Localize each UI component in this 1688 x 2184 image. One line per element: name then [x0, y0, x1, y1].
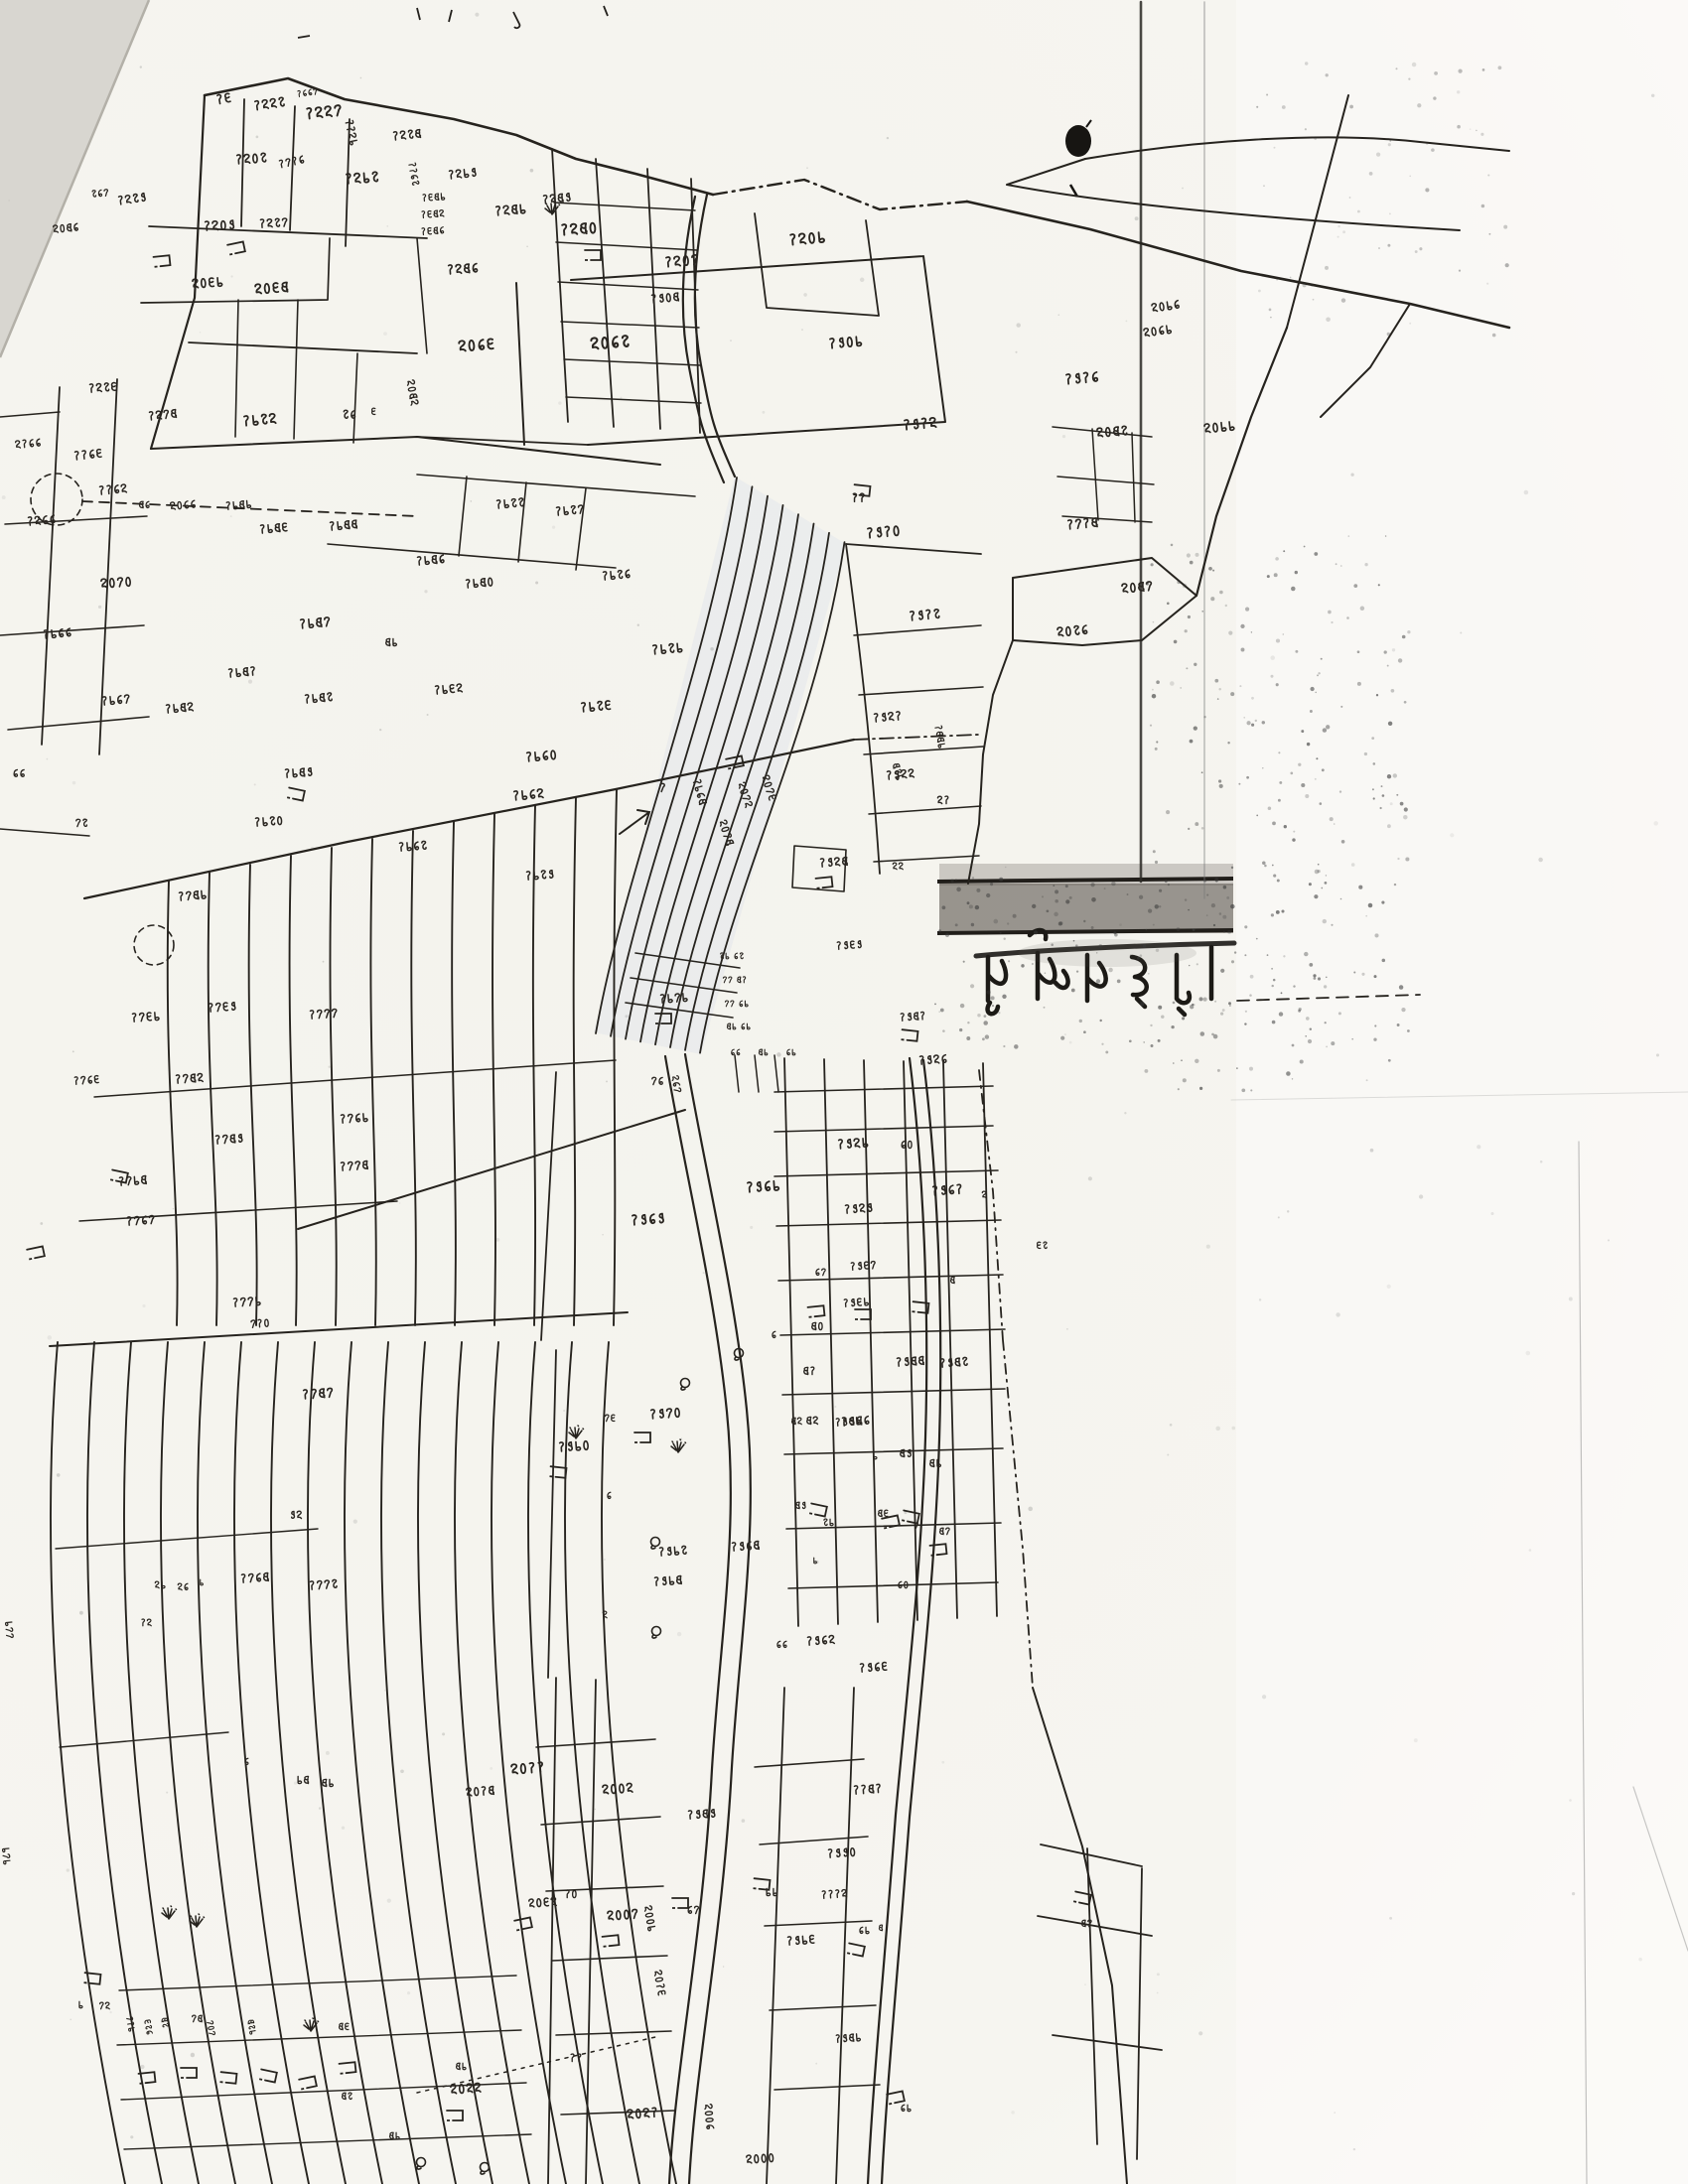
cadastral-map-canvas	[0, 0, 1688, 2184]
paper-right-lighter-area	[1236, 0, 1688, 2184]
smudged-road-band	[937, 864, 1233, 933]
scanned-map-page	[0, 0, 1688, 2184]
